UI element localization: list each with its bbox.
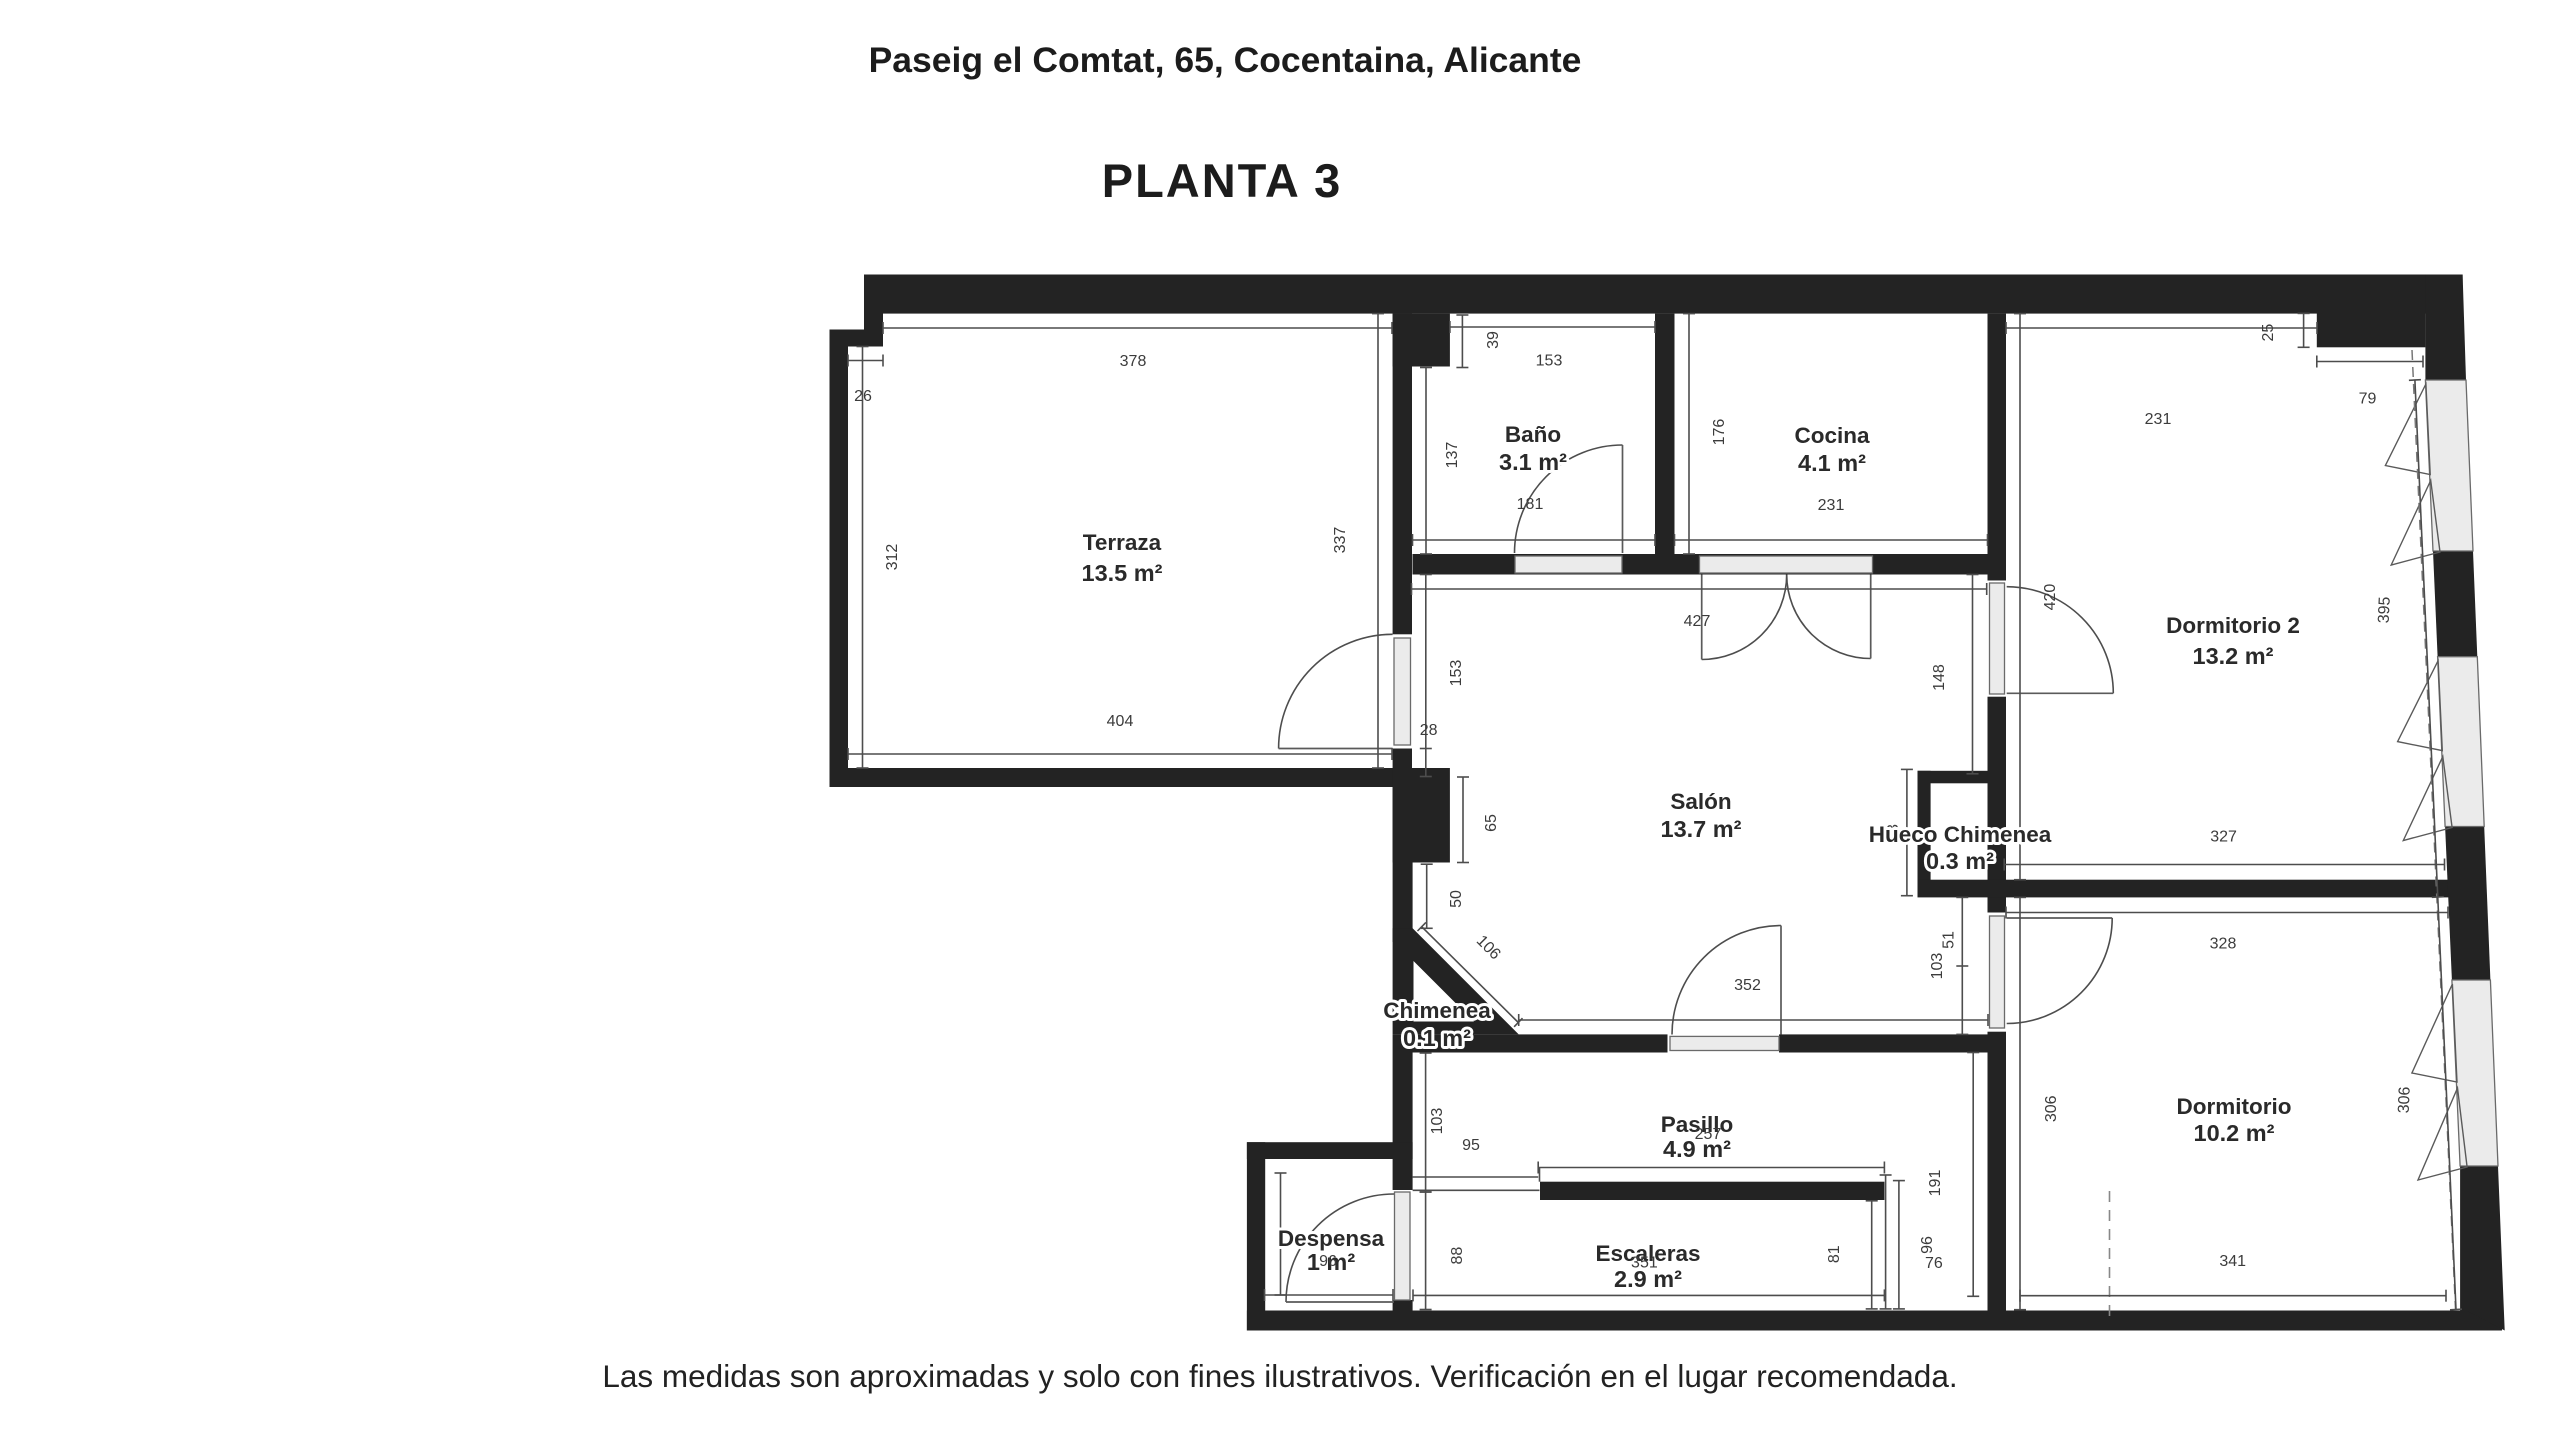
svg-text:420: 420 bbox=[2042, 584, 2059, 611]
svg-text:4.1 m²: 4.1 m² bbox=[1798, 450, 1866, 476]
svg-text:79: 79 bbox=[2359, 391, 2377, 408]
svg-text:257: 257 bbox=[1695, 1126, 1722, 1143]
svg-text:13.7 m²: 13.7 m² bbox=[1661, 816, 1742, 842]
svg-text:95: 95 bbox=[1462, 1137, 1480, 1154]
svg-text:395: 395 bbox=[2376, 596, 2394, 624]
svg-text:103: 103 bbox=[1429, 1108, 1446, 1135]
svg-text:3.1 m²: 3.1 m² bbox=[1499, 449, 1567, 475]
svg-text:153: 153 bbox=[1536, 353, 1563, 370]
svg-text:148: 148 bbox=[1931, 664, 1948, 691]
svg-text:13.5 m²: 13.5 m² bbox=[1082, 560, 1163, 586]
svg-text:176: 176 bbox=[1711, 419, 1728, 446]
svg-text:0.1 m²: 0.1 m² bbox=[1403, 1025, 1471, 1051]
svg-text:427: 427 bbox=[1684, 613, 1711, 630]
svg-text:Chimenea: Chimenea bbox=[1383, 998, 1491, 1023]
svg-text:328: 328 bbox=[2210, 936, 2237, 953]
svg-text:Dormitorio 2: Dormitorio 2 bbox=[2166, 613, 2300, 638]
svg-text:25: 25 bbox=[2260, 324, 2277, 342]
svg-text:351: 351 bbox=[1631, 1255, 1658, 1272]
svg-text:88: 88 bbox=[1449, 1247, 1466, 1265]
svg-text:312: 312 bbox=[884, 544, 901, 571]
svg-text:76: 76 bbox=[1925, 1255, 1943, 1272]
svg-text:51: 51 bbox=[1941, 931, 1958, 949]
svg-text:Hueco Chimenea: Hueco Chimenea bbox=[1869, 822, 2052, 847]
svg-text:Baño: Baño bbox=[1505, 422, 1561, 447]
svg-text:65: 65 bbox=[1483, 814, 1500, 832]
svg-text:327: 327 bbox=[2210, 829, 2237, 846]
svg-text:26: 26 bbox=[854, 388, 872, 405]
svg-text:96: 96 bbox=[1319, 1253, 1337, 1270]
svg-text:Cocina: Cocina bbox=[1794, 423, 1870, 448]
svg-text:153: 153 bbox=[1448, 660, 1465, 687]
svg-text:352: 352 bbox=[1734, 977, 1761, 994]
svg-text:10.2 m²: 10.2 m² bbox=[2194, 1120, 2275, 1146]
svg-text:231: 231 bbox=[1818, 497, 1845, 514]
svg-text:Terraza: Terraza bbox=[1083, 530, 1162, 555]
svg-text:181: 181 bbox=[1517, 496, 1544, 513]
svg-text:39: 39 bbox=[1485, 331, 1502, 349]
svg-text:306: 306 bbox=[2396, 1086, 2414, 1114]
svg-text:0.3 m²: 0.3 m² bbox=[1926, 848, 1994, 874]
svg-text:137: 137 bbox=[1444, 442, 1461, 469]
svg-text:337: 337 bbox=[1332, 527, 1349, 554]
svg-text:106: 106 bbox=[1473, 932, 1504, 963]
svg-text:191: 191 bbox=[1927, 1170, 1944, 1197]
svg-text:Salón: Salón bbox=[1670, 789, 1731, 814]
svg-text:103: 103 bbox=[1929, 953, 1946, 980]
svg-text:50: 50 bbox=[1448, 890, 1465, 908]
svg-text:Despensa: Despensa bbox=[1278, 1226, 1385, 1251]
svg-text:341: 341 bbox=[2219, 1253, 2246, 1270]
svg-text:96: 96 bbox=[1919, 1236, 1936, 1254]
svg-text:Dormitorio: Dormitorio bbox=[2177, 1094, 2292, 1119]
svg-text:231: 231 bbox=[2145, 411, 2172, 428]
svg-text:378: 378 bbox=[1120, 353, 1147, 370]
svg-text:81: 81 bbox=[1826, 1245, 1843, 1263]
svg-text:306: 306 bbox=[2043, 1095, 2060, 1122]
svg-text:13.2 m²: 13.2 m² bbox=[2193, 643, 2274, 669]
svg-text:404: 404 bbox=[1107, 713, 1134, 730]
svg-text:28: 28 bbox=[1420, 722, 1438, 739]
